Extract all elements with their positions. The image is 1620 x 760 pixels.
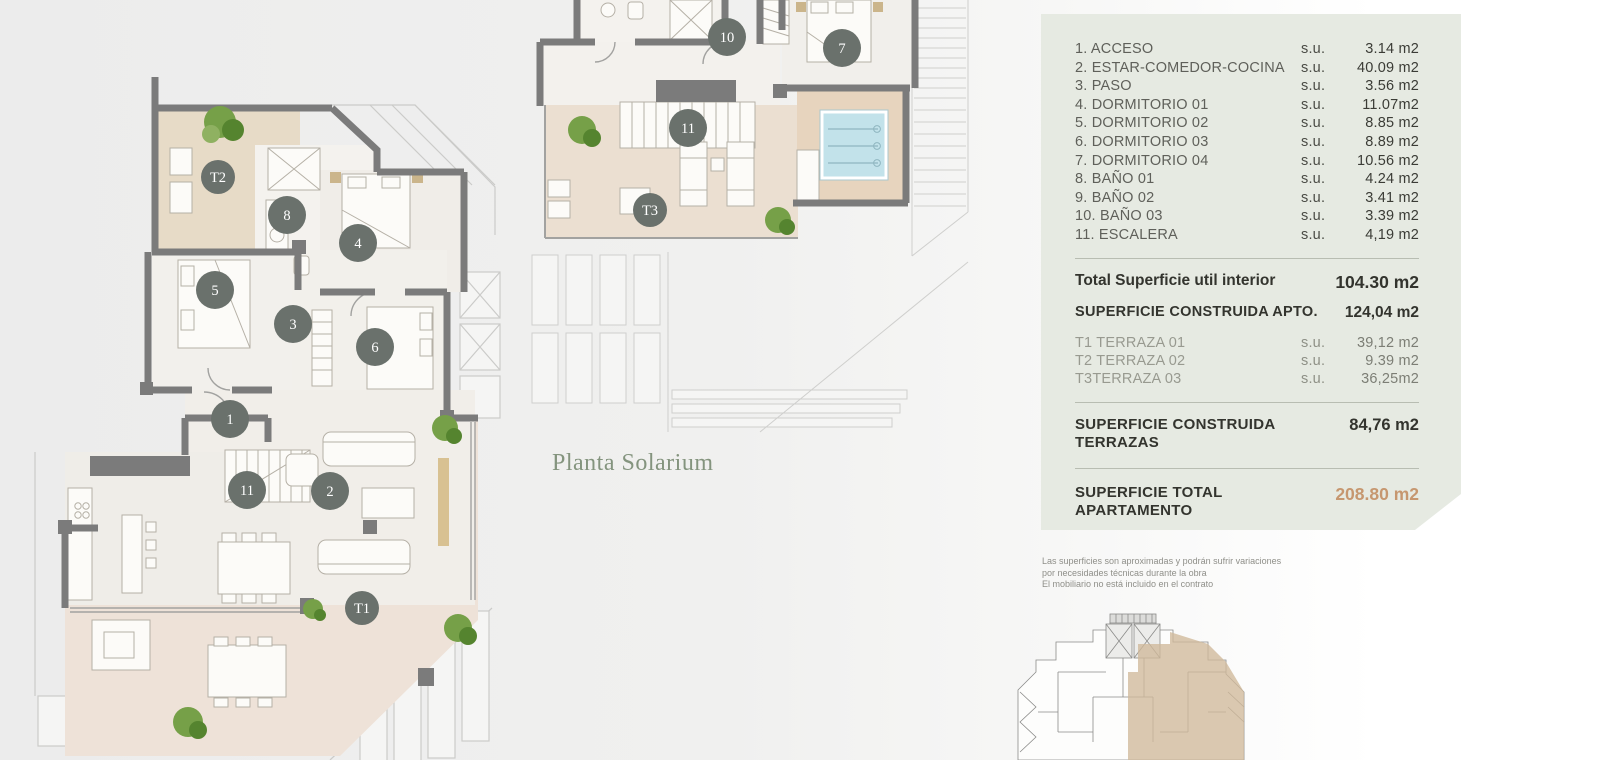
room-area-row: 6. DORMITORIO 03s.u.8.89 m2 <box>1075 133 1419 152</box>
divider <box>1075 258 1419 259</box>
su-label: s.u. <box>1301 226 1333 245</box>
su-label: s.u. <box>1301 370 1333 388</box>
svg-text:2: 2 <box>326 484 333 500</box>
room-area-row: 9. BAÑO 02s.u.3.41 m2 <box>1075 189 1419 208</box>
terrace-area-row: T1 TERRAZA 01s.u.39,12 m2 <box>1075 334 1419 352</box>
room-marker-2: 2 <box>311 472 349 510</box>
su-label: s.u. <box>1301 133 1333 152</box>
room-area: 3.39 m2 <box>1333 207 1419 226</box>
total-apartment-value: 208.80 m2 <box>1335 484 1419 505</box>
room-area-row: 10. BAÑO 03s.u.3.39 m2 <box>1075 207 1419 226</box>
total-useful-label: Total Superficie util interior <box>1075 272 1275 290</box>
su-label: s.u. <box>1301 152 1333 171</box>
svg-text:6: 6 <box>371 340 378 356</box>
terrace-area-list: T1 TERRAZA 01s.u.39,12 m2 T2 TERRAZA 02s… <box>1075 334 1419 389</box>
terrace-name: T1 TERRAZA 01 <box>1075 334 1301 352</box>
disclaimer-line: Las superficies son aproximadas y podrán… <box>1042 556 1372 568</box>
terrace-area-row: T3TERRAZA 03s.u.36,25m2 <box>1075 370 1419 388</box>
room-area-row: 5. DORMITORIO 02s.u.8.85 m2 <box>1075 114 1419 133</box>
svg-text:T2: T2 <box>210 170 226 186</box>
room-area: 8.89 m2 <box>1333 133 1419 152</box>
room-area: 3.14 m2 <box>1333 40 1419 59</box>
room-marker-6: 6 <box>356 328 394 366</box>
room-area: 11.07m2 <box>1333 96 1419 115</box>
terrace-area-row: T2 TERRAZA 02s.u.9.39 m2 <box>1075 352 1419 370</box>
room-area-row: 11. ESCALERAs.u.4,19 m2 <box>1075 226 1419 245</box>
room-area-row: 7. DORMITORIO 04s.u.10.56 m2 <box>1075 152 1419 171</box>
divider <box>1075 468 1419 469</box>
disclaimer-line: El mobiliario no está incluido en el con… <box>1042 579 1372 591</box>
total-useful-value: 104.30 m2 <box>1335 272 1419 293</box>
room-name: 7. DORMITORIO 04 <box>1075 152 1301 171</box>
keyplan-highlight <box>1128 632 1244 760</box>
room-area-row: 3. PASOs.u.3.56 m2 <box>1075 77 1419 96</box>
room-marker-5: 5 <box>196 271 234 309</box>
svg-text:4: 4 <box>354 236 362 252</box>
divider <box>1075 402 1419 403</box>
room-marker-10: 10 <box>708 18 746 56</box>
su-label: s.u. <box>1301 40 1333 59</box>
su-label: s.u. <box>1301 170 1333 189</box>
room-area: 40.09 m2 <box>1333 59 1419 78</box>
terrace-area: 39,12 m2 <box>1333 334 1419 352</box>
svg-text:10: 10 <box>720 30 735 46</box>
built-area-terraces-row: SUPERFICIE CONSTRUIDA TERRAZAS 84,76 m2 <box>1075 416 1419 452</box>
key-plan <box>998 612 1250 760</box>
room-area: 10.56 m2 <box>1333 152 1419 171</box>
room-area: 8.85 m2 <box>1333 114 1419 133</box>
room-marker-11: 11 <box>228 471 266 509</box>
room-name: 1. ACCESO <box>1075 40 1301 59</box>
su-label: s.u. <box>1301 59 1333 78</box>
built-area-terraces-label: SUPERFICIE CONSTRUIDA TERRAZAS <box>1075 416 1275 452</box>
room-marker-t1: T1 <box>345 591 379 625</box>
svg-text:5: 5 <box>211 283 218 299</box>
solarium-plan-title: Planta Solarium <box>552 450 772 477</box>
disclaimer-text: Las superficies son aproximadas y podrán… <box>1042 556 1372 591</box>
built-area-terraces-value: 84,76 m2 <box>1349 416 1419 435</box>
room-area-row: 8. BAÑO 01s.u.4.24 m2 <box>1075 170 1419 189</box>
room-name: 2. ESTAR-COMEDOR-COCINA <box>1075 59 1301 78</box>
room-area-list: 1. ACCESOs.u.3.14 m2 2. ESTAR-COMEDOR-CO… <box>1075 40 1419 245</box>
terrace-name: T2 TERRAZA 02 <box>1075 352 1301 370</box>
room-area-row: 1. ACCESOs.u.3.14 m2 <box>1075 40 1419 59</box>
svg-text:8: 8 <box>283 208 290 224</box>
su-label: s.u. <box>1301 207 1333 226</box>
room-name: 3. PASO <box>1075 77 1301 96</box>
su-label: s.u. <box>1301 352 1333 370</box>
room-marker-7: 7 <box>823 29 861 67</box>
terrace-area: 9.39 m2 <box>1333 352 1419 370</box>
room-name: 10. BAÑO 03 <box>1075 207 1301 226</box>
su-label: s.u. <box>1301 114 1333 133</box>
su-label: s.u. <box>1301 334 1333 352</box>
room-marker-4: 4 <box>339 224 377 262</box>
total-apartment-area-row: SUPERFICIE TOTAL APARTAMENTO 208.80 m2 <box>1075 484 1419 520</box>
disclaimer-line: por necesidades técnicas durante la obra <box>1042 568 1372 580</box>
svg-text:T3: T3 <box>642 203 658 219</box>
su-label: s.u. <box>1301 189 1333 208</box>
built-area-apartment-row: SUPERFICIE CONSTRUIDA APTO. 124,04 m2 <box>1075 304 1419 322</box>
area-legend-panel: 1. ACCESOs.u.3.14 m2 2. ESTAR-COMEDOR-CO… <box>1041 14 1461 530</box>
room-area: 3.41 m2 <box>1333 189 1419 208</box>
room-name: 5. DORMITORIO 02 <box>1075 114 1301 133</box>
room-name: 4. DORMITORIO 01 <box>1075 96 1301 115</box>
svg-text:11: 11 <box>240 483 254 499</box>
room-marker-11: 11 <box>669 109 707 147</box>
su-label: s.u. <box>1301 96 1333 115</box>
room-area: 4,19 m2 <box>1333 226 1419 245</box>
room-name: 9. BAÑO 02 <box>1075 189 1301 208</box>
svg-text:3: 3 <box>289 317 296 333</box>
terrace-name: T3TERRAZA 03 <box>1075 370 1301 388</box>
room-area: 3.56 m2 <box>1333 77 1419 96</box>
room-name: 8. BAÑO 01 <box>1075 170 1301 189</box>
room-marker-8: 8 <box>268 196 306 234</box>
room-name: 11. ESCALERA <box>1075 226 1301 245</box>
floorplan-main: T2 8 4 5 3 6 1 11 2 T1 <box>30 60 510 760</box>
built-area-apartment-label: SUPERFICIE CONSTRUIDA APTO. <box>1075 304 1318 320</box>
room-marker-3: 3 <box>274 305 312 343</box>
svg-text:T1: T1 <box>354 601 370 617</box>
svg-text:7: 7 <box>838 41 845 57</box>
room-marker-t2: T2 <box>201 160 235 194</box>
svg-text:11: 11 <box>681 121 695 137</box>
svg-text:1: 1 <box>226 412 233 428</box>
room-name: 6. DORMITORIO 03 <box>1075 133 1301 152</box>
room-marker-1: 1 <box>211 400 249 438</box>
room-area-row: 4. DORMITORIO 01s.u.11.07m2 <box>1075 96 1419 115</box>
su-label: s.u. <box>1301 77 1333 96</box>
room-marker-t3: T3 <box>633 193 667 227</box>
built-area-apartment-value: 124,04 m2 <box>1345 304 1419 322</box>
floorplan-solarium: 10 7 11 T3 <box>520 0 970 440</box>
room-area: 4.24 m2 <box>1333 170 1419 189</box>
room-area-row: 2. ESTAR-COMEDOR-COCINAs.u.40.09 m2 <box>1075 59 1419 78</box>
terrace-area: 36,25m2 <box>1333 370 1419 388</box>
pool <box>820 110 888 180</box>
total-useful-area-row: Total Superficie util interior 104.30 m2 <box>1075 272 1419 293</box>
total-apartment-label: SUPERFICIE TOTAL APARTAMENTO <box>1075 484 1223 520</box>
